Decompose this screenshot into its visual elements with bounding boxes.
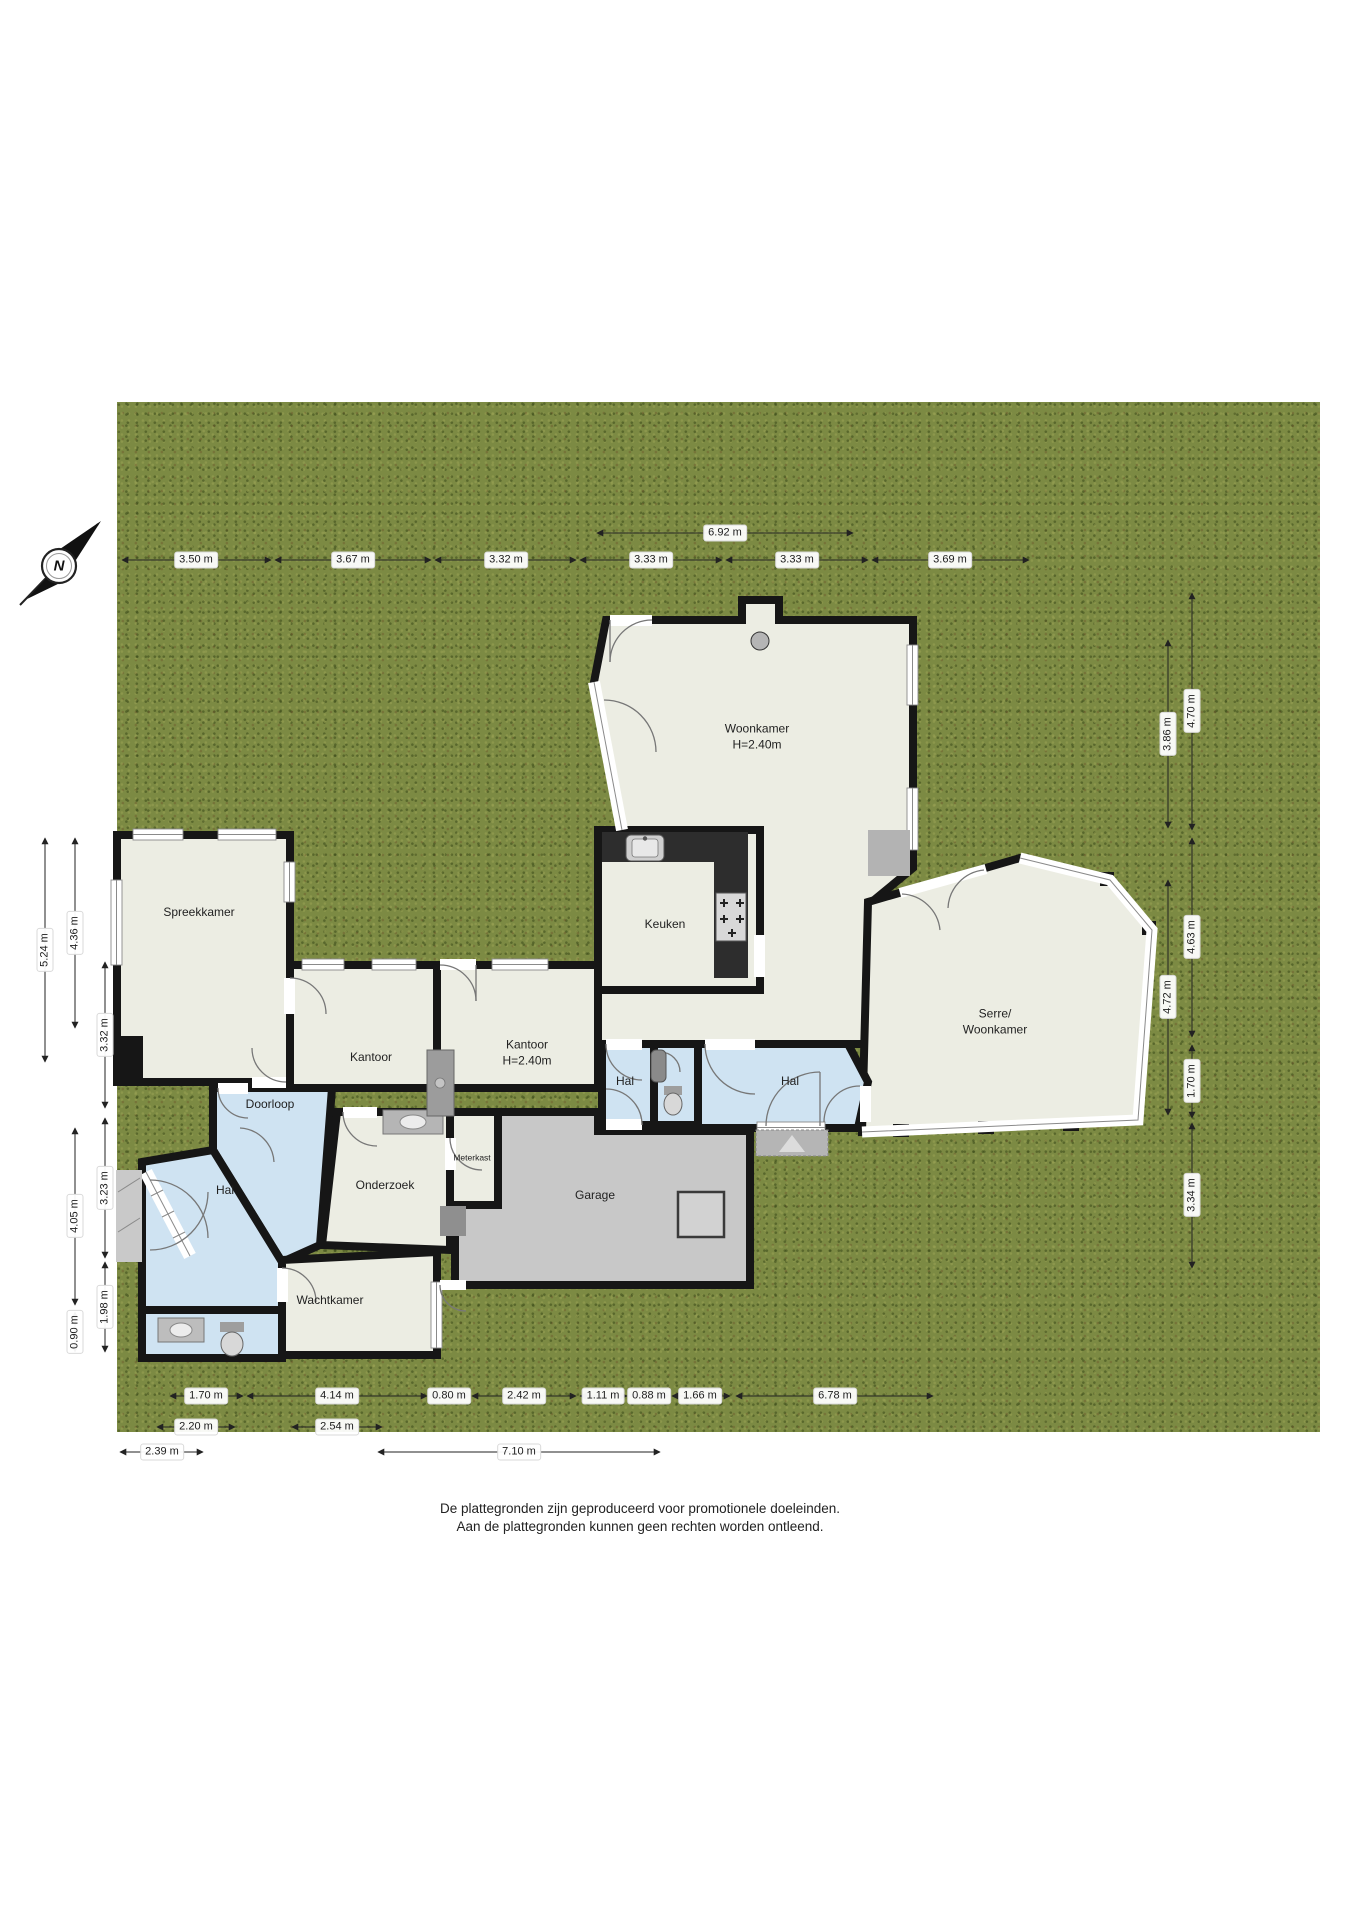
room-label-sub: H=2.40m (725, 737, 789, 753)
dim-label-bottom-7: 1.66 m (678, 1388, 722, 1405)
dim-label-left-6: 3.23 m (97, 1166, 114, 1210)
dim-label-bottom-9: 2.20 m (174, 1419, 218, 1436)
room-label-sub: Woonkamer (963, 1022, 1027, 1038)
room-serre-floor (862, 858, 1152, 1132)
dim-label-bottom-5: 1.11 m (582, 1388, 625, 1405)
floorplan-page: N Woonkamer H=2.40m Keuken Serre/ Woonka… (0, 0, 1358, 1920)
dim-label-left-7: 1.98 m (97, 1285, 114, 1329)
room-label-doorloop: Doorloop (246, 1097, 295, 1113)
dim-label-top-1: 3.50 m (174, 552, 218, 569)
dim-label-top-overall: 6.92 m (703, 525, 747, 542)
dim-label-bottom-2: 4.14 m (315, 1388, 359, 1405)
dim-label-right-1: 3.86 m (1160, 712, 1177, 756)
footer-line-1: De plattegronden zijn geproduceerd voor … (0, 1500, 1280, 1518)
garage-skylight (678, 1192, 724, 1237)
wc2-toilet (221, 1332, 243, 1356)
room-label-keuken: Keuken (645, 917, 686, 933)
fireplace-flue (751, 632, 769, 650)
dim-label-top-3: 3.32 m (484, 552, 528, 569)
compass-north-label: N (54, 558, 65, 575)
dim-label-right-5: 1.70 m (1184, 1059, 1201, 1103)
column-block (868, 830, 910, 876)
dim-label-top-5: 3.33 m (775, 552, 819, 569)
room-label-wachtkamer: Wachtkamer (297, 1293, 364, 1309)
dim-label-bottom-4: 2.42 m (502, 1388, 546, 1405)
room-kantoor-rechts-floor (437, 965, 598, 1088)
room-label-kantoor-rechts: Kantoor H=2.40m (502, 1037, 551, 1068)
dim-label-bottom-10: 2.54 m (315, 1419, 359, 1436)
dim-label-bottom-12: 7.10 m (497, 1444, 541, 1461)
dim-label-left-4: 0.90 m (67, 1310, 84, 1354)
dim-label-top-4: 3.33 m (629, 552, 673, 569)
dim-label-right-2: 4.72 m (1160, 975, 1177, 1019)
porch-pad (116, 1170, 142, 1262)
wc2-sink (170, 1323, 192, 1337)
dim-label-right-3: 4.70 m (1184, 689, 1201, 733)
dim-label-top-2: 3.67 m (331, 552, 375, 569)
wc-basin (651, 1050, 666, 1082)
dim-label-left-2: 4.36 m (67, 911, 84, 955)
room-label-meterkast: Meterkast (453, 1152, 490, 1163)
floorplan-graphic (0, 0, 1358, 1920)
meterkast-box (440, 1206, 466, 1236)
dim-label-top-6: 3.69 m (928, 552, 972, 569)
dim-label-bottom-11: 2.39 m (140, 1444, 184, 1461)
room-label-text: Serre/ (963, 1006, 1027, 1022)
dim-label-left-3: 4.05 m (67, 1194, 84, 1238)
dim-label-bottom-1: 1.70 m (184, 1388, 228, 1405)
dim-label-bottom-6: 0.88 m (627, 1388, 671, 1405)
room-label-text: Kantoor (502, 1037, 551, 1053)
room-label-garage: Garage (575, 1188, 615, 1204)
room-label-onderzoek: Onderzoek (356, 1178, 415, 1194)
room-label-hal-linksonder: Hal (216, 1183, 234, 1199)
room-label-hal-klein: Hal (616, 1074, 634, 1090)
footer-line-2: Aan de plattegronden kunnen geen rechten… (0, 1518, 1280, 1536)
dim-label-right-4: 4.63 m (1184, 915, 1201, 959)
wc-toilet (664, 1093, 682, 1115)
footer-disclaimer: De plattegronden zijn geproduceerd voor … (0, 1500, 1280, 1536)
room-label-spreekkamer: Spreekkamer (163, 905, 234, 921)
dim-label-bottom-3: 0.80 m (427, 1388, 471, 1405)
room-label-text: Woonkamer (725, 721, 789, 737)
room-label-serre: Serre/ Woonkamer (963, 1006, 1027, 1037)
room-label-sub: H=2.40m (502, 1053, 551, 1069)
dim-label-left-5: 3.32 m (97, 1013, 114, 1057)
room-label-woonkamer: Woonkamer H=2.40m (725, 721, 789, 752)
room-label-hal-entree: Hal (781, 1074, 799, 1090)
dim-label-right-6: 3.34 m (1184, 1173, 1201, 1217)
walls-and-floors (117, 600, 1152, 1358)
dim-label-bottom-8: 6.78 m (813, 1388, 857, 1405)
dim-label-left-1: 5.24 m (37, 928, 54, 972)
room-kantoor-links-floor (290, 965, 437, 1088)
room-label-kantoor-links: Kantoor (350, 1050, 392, 1066)
onderzoek-sink (400, 1115, 426, 1129)
